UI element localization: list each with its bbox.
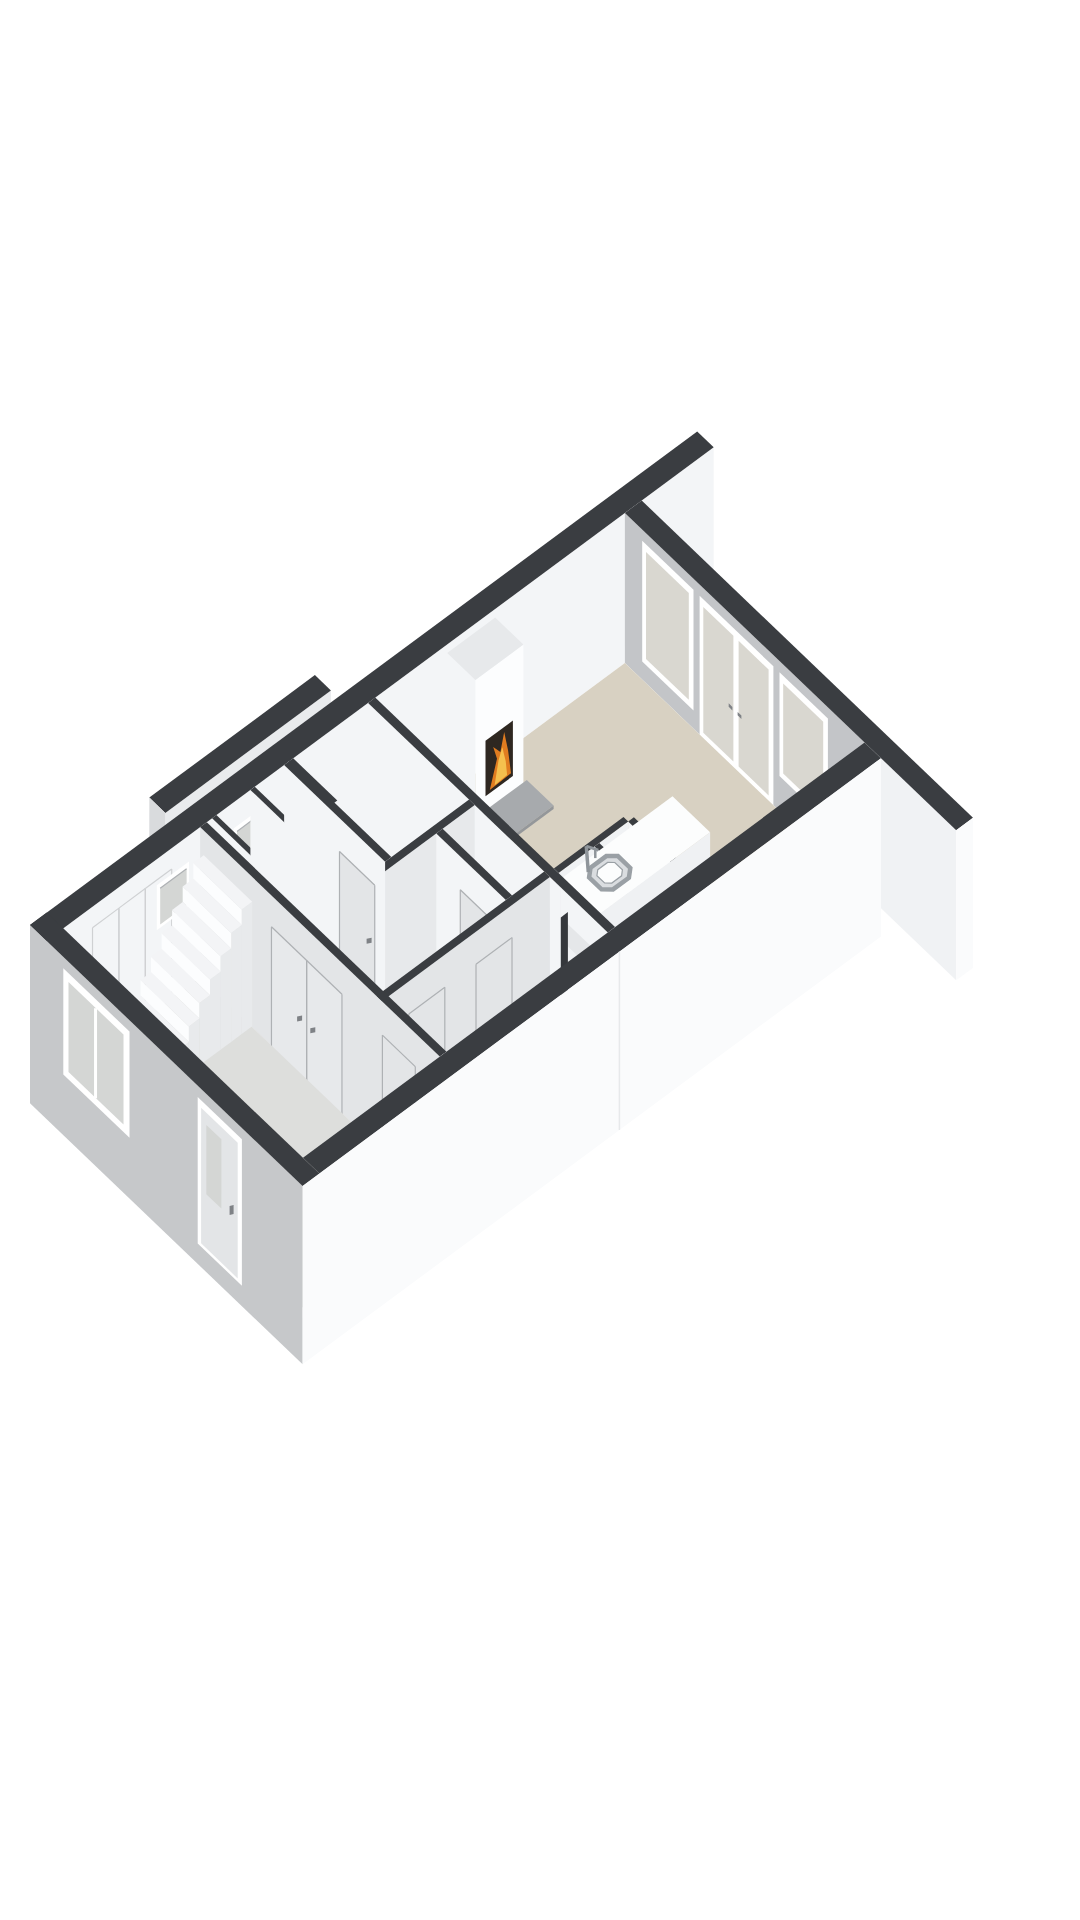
front-door-glass <box>206 1125 221 1209</box>
floorplan-scene <box>0 0 1080 1920</box>
floorplan-3d-render <box>0 0 1080 1920</box>
door-handle-icon <box>367 938 372 944</box>
stair-stringer <box>221 948 232 1049</box>
door-handle-icon <box>297 1016 302 1022</box>
stair-stringer <box>199 995 210 1065</box>
stair-stringer <box>210 972 221 1058</box>
door-handle-icon <box>230 1205 234 1215</box>
stair-stringer <box>231 925 242 1042</box>
stair-stringer <box>242 902 253 1034</box>
door-handle-icon <box>310 1027 315 1033</box>
